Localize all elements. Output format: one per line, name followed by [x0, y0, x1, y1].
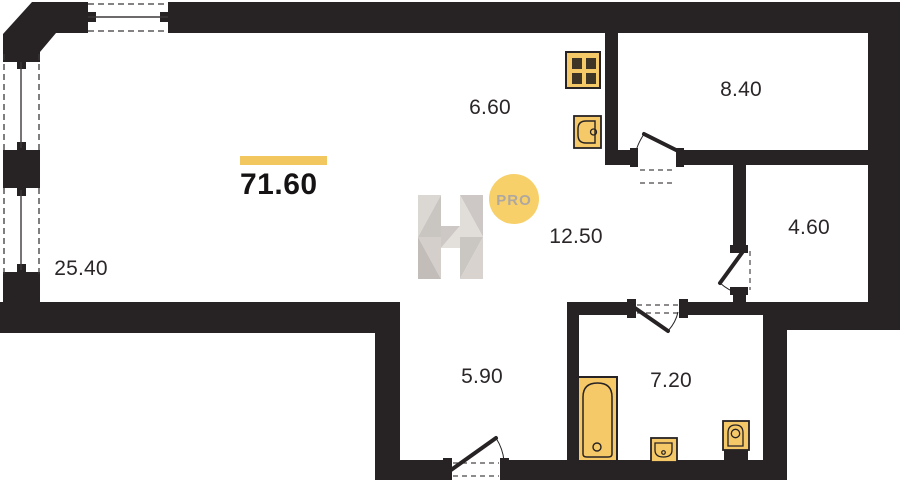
wall-segment [681, 150, 900, 165]
accent-bar [240, 156, 327, 165]
door-right-room [720, 250, 750, 293]
room-area-label: 5.90 [461, 365, 503, 389]
fixtures [566, 52, 749, 462]
door-top-right-room [636, 134, 680, 183]
wall-segment [375, 460, 446, 480]
door-entrance [451, 438, 504, 476]
wall-segment [168, 2, 900, 33]
door-jamb [630, 148, 638, 167]
total-area-block: 71.60 [240, 156, 327, 202]
room-area-label: 25.40 [54, 257, 108, 281]
total-area-label: 71.60 [240, 168, 327, 202]
watermark: PRO [418, 174, 539, 279]
window-left-upper [4, 54, 39, 150]
wall-segment [733, 165, 746, 250]
wall-segment [567, 302, 633, 315]
wall-segment [375, 302, 400, 480]
toilet-icon [723, 421, 749, 462]
bathtub-icon [578, 377, 617, 461]
wall-segment [3, 272, 40, 307]
room-area-label: 12.50 [549, 225, 603, 249]
door-jamb [500, 458, 509, 480]
wall-segment [0, 302, 400, 333]
wall-segment [605, 33, 618, 152]
wall-segment [3, 150, 40, 188]
room-area-label: 6.60 [469, 96, 511, 120]
room-area-label: 4.60 [788, 216, 830, 240]
door-jamb [679, 299, 688, 318]
washbasin-icon [651, 438, 677, 462]
floor-plan-drawing: PRO [0, 0, 900, 480]
stove-icon [566, 52, 600, 88]
watermark-h-icon [418, 195, 483, 279]
window-left-lower [4, 188, 39, 274]
room-area-label: 7.20 [650, 369, 692, 393]
wall-segment [868, 2, 900, 330]
wall-segment [3, 2, 88, 62]
room-area-label: 8.40 [720, 78, 762, 102]
kitchen-sink-icon [574, 116, 601, 148]
pro-badge-label: PRO [496, 192, 532, 209]
wall-segment [505, 460, 787, 480]
floor-plan: PRO 25.40 6.60 8.40 12.50 4.60 5.90 7.20… [0, 0, 900, 480]
door-bathroom [632, 305, 678, 331]
pro-badge: PRO [489, 174, 539, 224]
window-top [88, 4, 168, 31]
wall-segment [763, 313, 787, 480]
